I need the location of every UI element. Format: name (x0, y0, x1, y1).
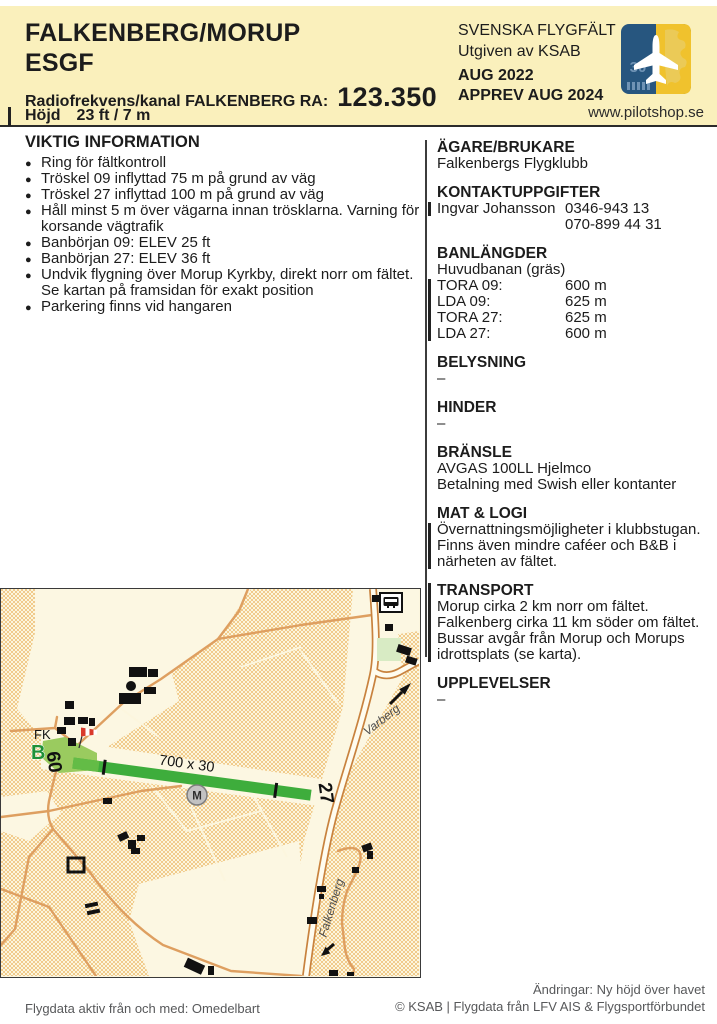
airplane-logo-icon: 30 (621, 24, 691, 94)
declared-distance-label: TORA 09: (437, 278, 565, 294)
info-item: Tröskel 09 inflyttad 75 m på grund av vä… (25, 171, 421, 187)
airfield-name: FALKENBERG/MORUP (25, 18, 300, 48)
info-item: Parkering finns vid hangaren (25, 299, 421, 315)
table-row: LDA 09: 625 m (437, 294, 705, 310)
info-item: Tröskel 27 inflyttad 100 m på grund av v… (25, 187, 421, 203)
obstacles-value: – (437, 416, 705, 432)
owner-section: ÄGARE/BRUKARE Falkenbergs Flygklubb (437, 139, 705, 172)
header: FALKENBERG/MORUP ESGF Radiofrekvens/kana… (0, 6, 717, 127)
contact-row: 070-899 44 31 (437, 217, 705, 233)
copyright-note: © KSAB | Flygdata från LFV AIS & Flygspo… (395, 999, 705, 1016)
info-item: Undvik flygning över Morup Kyrkby, direk… (25, 267, 421, 299)
elevation-value: 23 ft / 7 m (77, 107, 151, 125)
radio-frequency-value: 123.350 (337, 82, 437, 113)
table-row: TORA 27: 625 m (437, 310, 705, 326)
info-item: Banbörjan 09: ELEV 25 ft (25, 235, 421, 251)
contact-phone-1: 0346-943 13 (565, 201, 649, 217)
runway-designator-09: 09 (44, 750, 68, 774)
food-lodging-section: MAT & LOGI Övernattningsmöjligheter i kl… (437, 505, 705, 570)
info-item: Håll minst 5 m över vägarna innan tröskl… (25, 203, 421, 235)
declared-distance-label: LDA 27: (437, 326, 565, 342)
footer-right: Ändringar: Ny höjd över havet © KSAB | F… (395, 982, 705, 1015)
series-title: SVENSKA FLYGFÄLT (458, 20, 616, 41)
page-title: FALKENBERG/MORUP ESGF (25, 18, 300, 78)
runway-lengths-table: TORA 09: 600 m LDA 09: 625 m TORA 27: 62… (437, 278, 705, 342)
contact-heading: KONTAKTUPPGIFTER (437, 184, 705, 201)
details-column: ÄGARE/BRUKARE Falkenbergs Flygklubb KONT… (437, 139, 705, 720)
bus-stop-icon (380, 593, 402, 612)
declared-distance-value: 600 m (565, 278, 607, 294)
contact-section: KONTAKTUPPGIFTER Ingvar Johansson 0346-9… (437, 184, 705, 233)
elevation-label: Höjd (25, 107, 61, 125)
important-information-list: Ring för fältkontroll Tröskel 09 inflytt… (25, 155, 421, 315)
edition-date: AUG 2022 (458, 66, 616, 86)
owner-value: Falkenbergs Flygklubb (437, 156, 705, 172)
declared-distance-value: 600 m (565, 326, 607, 342)
runway-surface: Huvudbanan (gräs) (437, 262, 705, 278)
experiences-value: – (437, 692, 705, 708)
declared-distance-value: 625 m (565, 310, 607, 326)
validity-note: Flygdata aktiv från och med: Omedelbart (25, 1001, 260, 1016)
food-lodging-heading: MAT & LOGI (437, 505, 705, 522)
owner-heading: ÄGARE/BRUKARE (437, 139, 705, 156)
website-link[interactable]: www.pilotshop.se (588, 104, 704, 121)
publication-info: SVENSKA FLYGFÄLT Utgiven av KSAB AUG 202… (458, 20, 616, 106)
marker-m-label: M (192, 791, 202, 803)
table-row: TORA 09: 600 m (437, 278, 705, 294)
lighting-heading: BELYSNING (437, 354, 705, 371)
runway-designator-27: 27 (314, 781, 338, 805)
info-item: Ring för fältkontroll (25, 155, 421, 171)
fuel-payment: Betalning med Swish eller kontanter (437, 477, 705, 493)
publisher: Utgiven av KSAB (458, 41, 616, 62)
contact-phone-2: 070-899 44 31 (565, 217, 662, 233)
idrottsplats-marker: M (187, 785, 207, 805)
lighting-value: – (437, 371, 705, 387)
food-lodging-text: Övernattningsmöjligheter i klubbstugan. … (437, 522, 705, 570)
change-bar (8, 107, 11, 126)
contact-row: Ingvar Johansson 0346-943 13 (437, 201, 705, 217)
airfield-chart-page: FALKENBERG/MORUP ESGF Radiofrekvens/kana… (0, 0, 717, 1024)
declared-distance-label: LDA 09: (437, 294, 565, 310)
runway-lengths-heading: BANLÄNGDER (437, 245, 705, 262)
column-divider (425, 140, 427, 657)
obstacles-heading: HINDER (437, 399, 705, 416)
declared-distance-label: TORA 27: (437, 310, 565, 326)
transport-text: Morup cirka 2 km norr om fältet. Falkenb… (437, 599, 705, 663)
changes-note: Ändringar: Ny höjd över havet (395, 982, 705, 999)
fuel-heading: BRÄNSLE (437, 444, 705, 461)
table-row: LDA 27: 600 m (437, 326, 705, 342)
flygklubb-label: FK (34, 727, 51, 742)
map-canvas: 700 x 30 09 27 M (1, 589, 419, 976)
approval-date: APPREV AUG 2024 (458, 86, 616, 106)
elevation-line: Höjd 23 ft / 7 m (25, 107, 150, 125)
contact-name: Ingvar Johansson (437, 201, 565, 217)
bus-stop-b-label: B (31, 742, 45, 764)
transport-heading: TRANSPORT (437, 582, 705, 599)
lighting-section: BELYSNING – (437, 354, 705, 387)
fuel-type: AVGAS 100LL Hjelmco (437, 461, 705, 477)
info-item: Banbörjan 27: ELEV 36 ft (25, 251, 421, 267)
fuel-section: BRÄNSLE AVGAS 100LL Hjelmco Betalning me… (437, 444, 705, 493)
important-information-section: VIKTIG INFORMATION Ring för fältkontroll… (25, 133, 421, 315)
obstacles-section: HINDER – (437, 399, 705, 432)
transport-section: TRANSPORT Morup cirka 2 km norr om fälte… (437, 582, 705, 663)
declared-distance-value: 625 m (565, 294, 607, 310)
icao-code: ESGF (25, 48, 300, 78)
runway-lengths-section: BANLÄNGDER Huvudbanan (gräs) TORA 09: 60… (437, 245, 705, 342)
airfield-map: 700 x 30 09 27 M (0, 588, 421, 978)
important-information-heading: VIKTIG INFORMATION (25, 133, 421, 152)
experiences-section: UPPLEVELSER – (437, 675, 705, 708)
experiences-heading: UPPLEVELSER (437, 675, 705, 692)
pilotshop-logo: 30 (621, 24, 691, 94)
